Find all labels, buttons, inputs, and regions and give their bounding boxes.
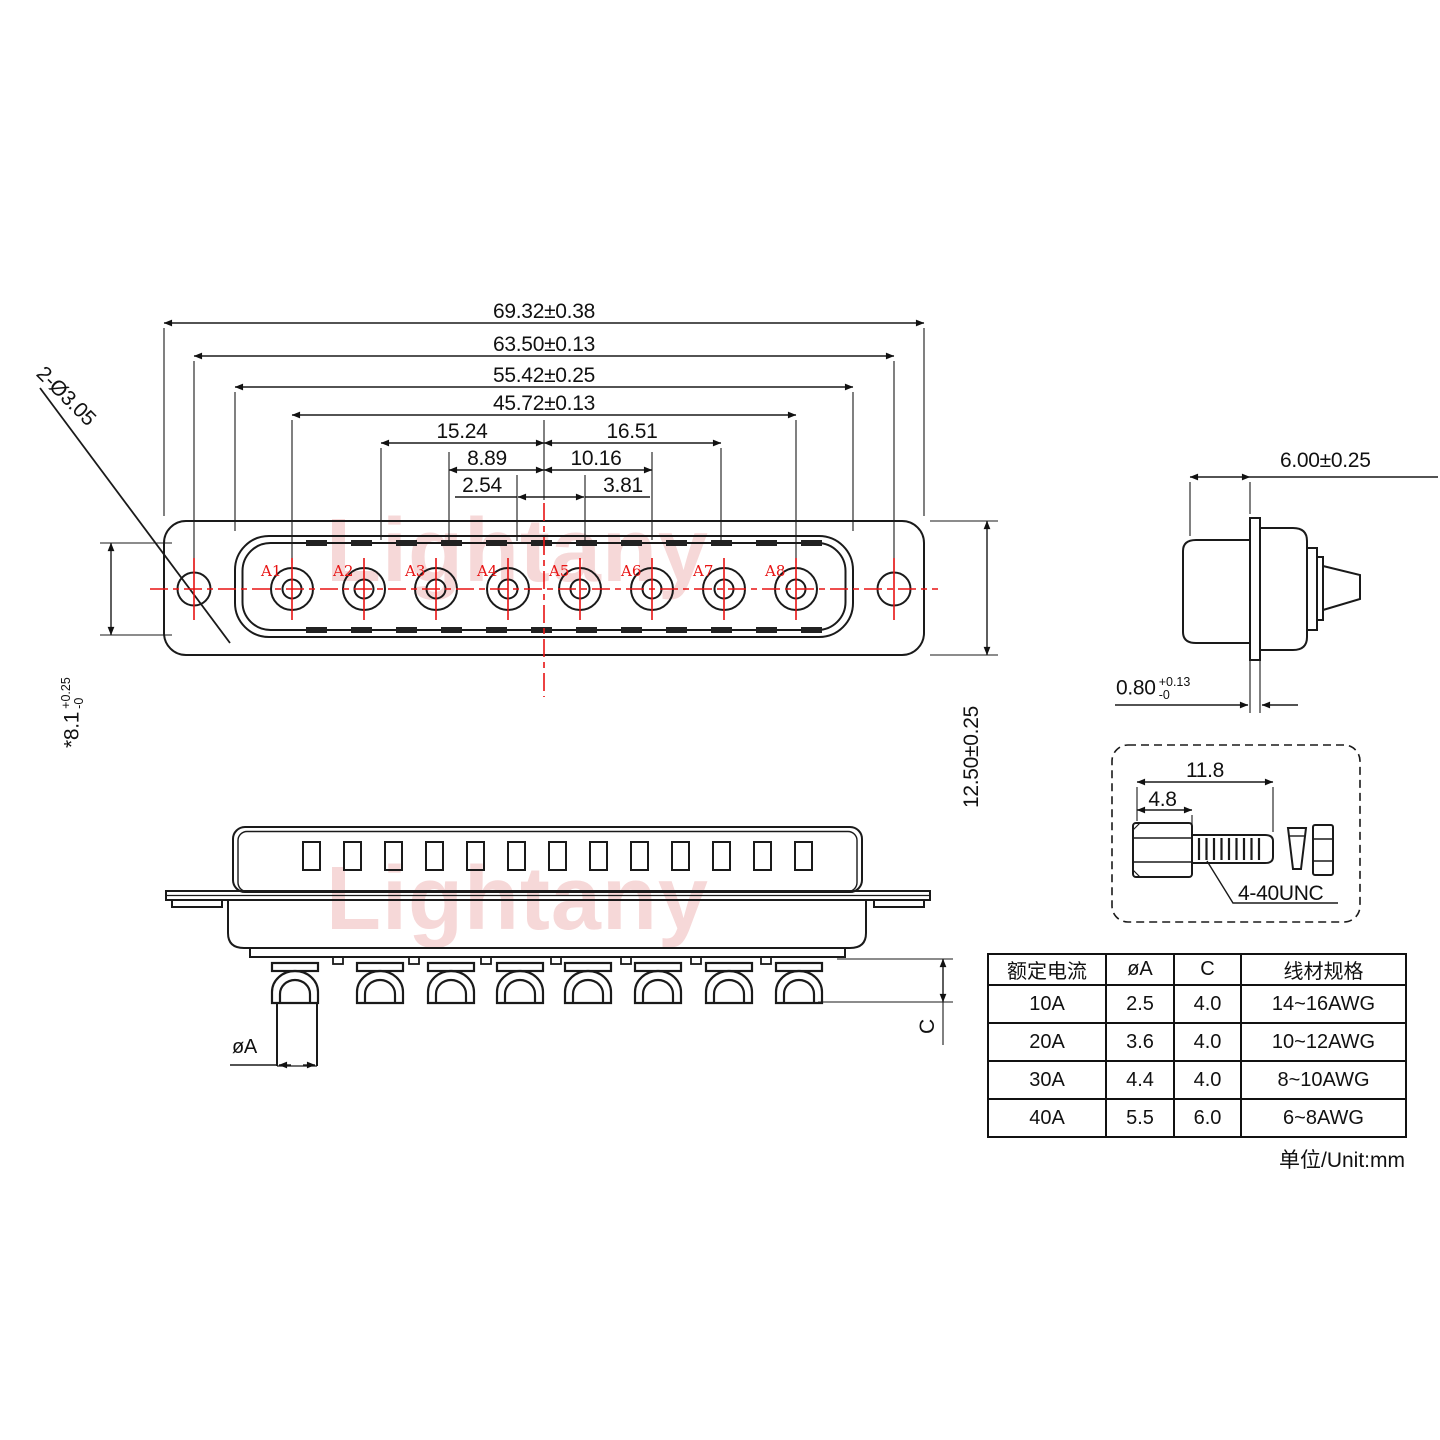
pin-label-a7: A7 (693, 562, 713, 580)
table-row: 40A 5.5 6.0 6~8AWG (988, 1099, 1406, 1137)
bottom-view (166, 827, 930, 1066)
pin-label-a2: A2 (333, 562, 353, 580)
dim-p2-left: 8.89 (442, 447, 532, 470)
screw-thread-shaft (1192, 835, 1273, 863)
cell: 10~12AWG (1241, 1023, 1406, 1061)
pin-label-a3: A3 (405, 562, 425, 580)
tol-minus: -0 (1159, 689, 1191, 702)
table-row: 20A 3.6 4.0 10~12AWG (988, 1023, 1406, 1061)
cell: 2.5 (1106, 985, 1174, 1023)
side-view (1183, 518, 1360, 660)
pin-label-a6: A6 (621, 562, 641, 580)
cell: 5.5 (1106, 1099, 1174, 1137)
dim-shell-height: *8.1+0.25-0 (60, 677, 86, 748)
header-rated-current: 额定电流 (988, 954, 1106, 985)
thread-spec: 4-40UNC (1238, 882, 1323, 905)
cell: 10A (988, 985, 1106, 1023)
mount-hole-leader (40, 388, 230, 643)
spec-table: 额定电流 øA C 线材规格 10A 2.5 4.0 14~16AWG 20A … (987, 953, 1407, 1138)
table-row: 10A 2.5 4.0 14~16AWG (988, 985, 1406, 1023)
cell: 30A (988, 1061, 1106, 1099)
dim-p3-right: 16.51 (582, 420, 682, 443)
pin-label-a5: A5 (549, 562, 569, 580)
pin-label-a8: A8 (765, 562, 785, 580)
dim-cup-length: C (916, 1019, 939, 1034)
pin-label-a4: A4 (477, 562, 497, 580)
dim-flange-height: 12.50±0.25 (960, 706, 983, 808)
tol-minus: -0 (73, 677, 86, 709)
header-wire-gauge: 线材规格 (1241, 954, 1406, 985)
dim-p1-left: 2.54 (437, 474, 527, 497)
cell: 20A (988, 1023, 1106, 1061)
dim-flange-thickness: 0.80+0.13-0 (1116, 676, 1190, 702)
technical-drawing-canvas: Lightany Lightany (0, 0, 1440, 1440)
cell: 4.0 (1174, 1061, 1241, 1099)
cell: 4.0 (1174, 985, 1241, 1023)
dim-depth: 6.00±0.25 (1280, 449, 1371, 472)
cell: 8~10AWG (1241, 1061, 1406, 1099)
dim-screw-length: 11.8 (1160, 759, 1250, 782)
dim-p3-left: 15.24 (412, 420, 512, 443)
bottom-view-dimensions (230, 959, 953, 1065)
solder-cups (272, 963, 822, 1003)
table-row: 30A 4.4 4.0 8~10AWG (988, 1061, 1406, 1099)
screw-tip-view (1288, 828, 1306, 869)
dim-screw-head: 4.8 (1125, 788, 1200, 811)
unit-note: 单位/Unit:mm (1165, 1144, 1405, 1174)
cell: 6~8AWG (1241, 1099, 1406, 1137)
header-dia-a: øA (1106, 954, 1174, 985)
dim-flange-thickness-value: 0.80 (1116, 677, 1156, 700)
dim-mount-span: 63.50±0.13 (344, 333, 744, 356)
cell: 40A (988, 1099, 1106, 1137)
header-c: C (1174, 954, 1241, 985)
dim-p1-right: 3.81 (578, 474, 668, 497)
screw-front-view (1313, 825, 1333, 875)
centerlines (150, 503, 938, 697)
cell: 6.0 (1174, 1099, 1241, 1137)
dim-pins-span: 45.72±0.13 (344, 392, 744, 415)
cell: 3.6 (1106, 1023, 1174, 1061)
drawing-lineart (0, 0, 1440, 1440)
dim-p2-right: 10.16 (551, 447, 641, 470)
cell: 4.4 (1106, 1061, 1174, 1099)
cell: 14~16AWG (1241, 985, 1406, 1023)
dim-overall-width: 69.32±0.38 (344, 300, 744, 323)
dim-pin-dia: øA (232, 1036, 257, 1058)
dim-shell-width: 55.42±0.25 (344, 364, 744, 387)
pin-label-a1: A1 (261, 562, 281, 580)
cell: 4.0 (1174, 1023, 1241, 1061)
dim-shell-height-value: *8.1 (61, 712, 84, 748)
insulator-body (228, 900, 866, 948)
spec-table-header-row: 额定电流 øA C 线材规格 (988, 954, 1406, 985)
thread-lines (1199, 838, 1259, 860)
shell-vent-slots (303, 842, 812, 870)
screw-hex-head (1133, 823, 1192, 877)
